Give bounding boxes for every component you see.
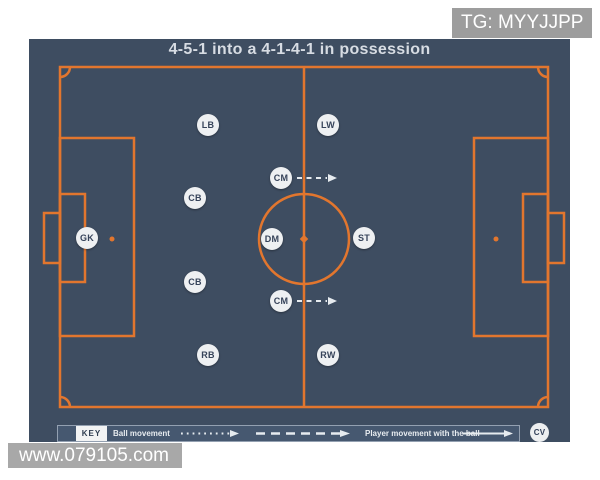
player-badge-label: LB xyxy=(202,120,215,130)
player-badge-cm-5[interactable]: CM xyxy=(270,167,292,189)
player-badge-label: LW xyxy=(321,120,335,130)
player-badge-dm-6[interactable]: DM xyxy=(261,228,283,250)
corner-arc-top-left xyxy=(60,67,70,77)
right-penalty-area xyxy=(474,138,548,336)
right-six-yard-box xyxy=(523,194,548,282)
player-badge-label: RB xyxy=(201,350,215,360)
player-badge-label: CB xyxy=(188,193,202,203)
watermark-top-right: TG: MYYJJPP xyxy=(452,8,592,38)
player-badge-st-9[interactable]: ST xyxy=(353,227,375,249)
player-badge-label: CM xyxy=(274,296,289,306)
key-bar: KEY Ball movement Player movement with t… xyxy=(57,425,520,442)
player-movement-dashed-arrow xyxy=(255,429,351,438)
player-badge-lb-1[interactable]: LB xyxy=(197,114,219,136)
player-badge-cm-7[interactable]: CM xyxy=(270,290,292,312)
key-label: KEY xyxy=(76,426,107,441)
player-badge-rb-4[interactable]: RB xyxy=(197,344,219,366)
player-movement-arrow xyxy=(296,296,338,306)
player-badge-label: DM xyxy=(265,234,280,244)
left-goal xyxy=(44,213,60,263)
watermark-bottom-left: www.079105.com xyxy=(8,443,182,468)
player-badge-label: RW xyxy=(320,350,335,360)
cv-logo: CV xyxy=(530,423,549,442)
player-badge-label: ST xyxy=(358,233,370,243)
centre-spot xyxy=(300,235,308,243)
player-badge-label: CM xyxy=(274,173,289,183)
player-badge-lw-8[interactable]: LW xyxy=(317,114,339,136)
corner-arc-bottom-right xyxy=(538,397,548,407)
player-badge-cb-2[interactable]: CB xyxy=(184,187,206,209)
player-badge-cb-3[interactable]: CB xyxy=(184,271,206,293)
right-penalty-spot xyxy=(494,237,499,242)
corner-arc-top-right xyxy=(538,67,548,77)
ball-movement-dotted-arrow xyxy=(180,429,240,438)
player-badge-gk-0[interactable]: GK xyxy=(76,227,98,249)
player-movement-solid-arrow xyxy=(462,429,514,438)
tactics-board: 4-5-1 into a 4-1-4-1 in possession xyxy=(29,39,570,442)
pitch xyxy=(29,39,570,442)
right-goal xyxy=(548,213,564,263)
corner-arc-bottom-left xyxy=(60,397,70,407)
left-penalty-spot xyxy=(110,237,115,242)
player-movement-arrow xyxy=(296,173,338,183)
player-badge-label: GK xyxy=(80,233,94,243)
player-badge-rw-10[interactable]: RW xyxy=(317,344,339,366)
player-badge-label: CB xyxy=(188,277,202,287)
key-ball-movement-label: Ball movement xyxy=(113,426,170,441)
